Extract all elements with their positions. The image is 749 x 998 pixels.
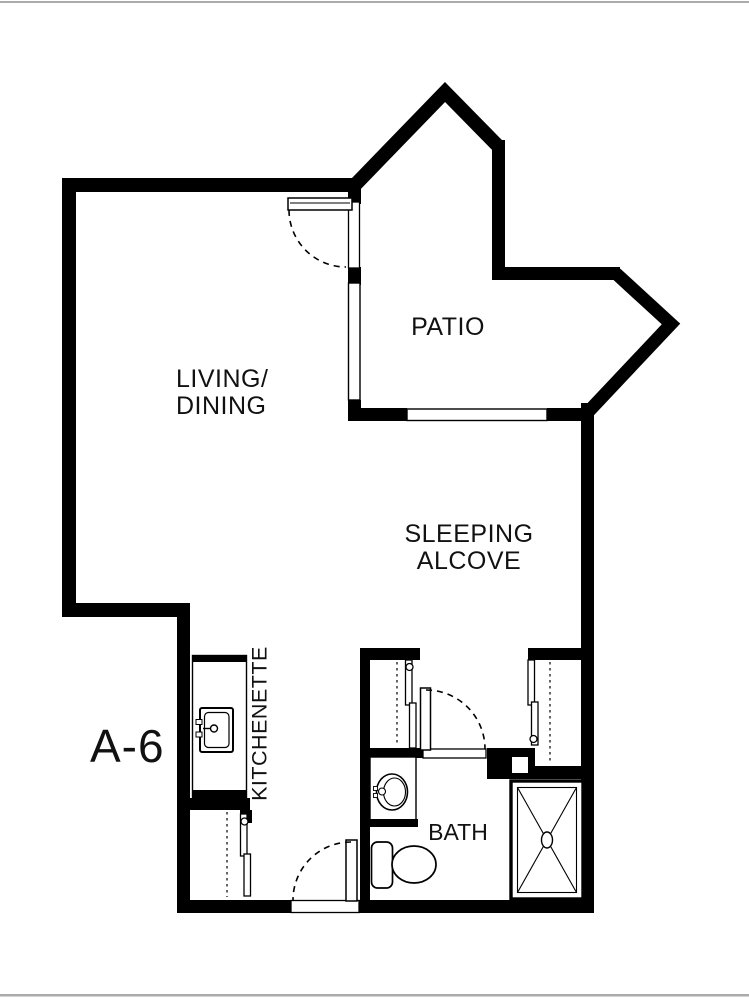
sleeping-alcove-label: SLEEPINGALCOVE [399,521,539,574]
patio-label: PATIO [398,314,498,341]
unit-number-label: A-6 [90,719,165,773]
sleeping-label-line2: ALCOVE [399,548,539,575]
bath-label: BATH [424,819,492,846]
patio-door [288,198,360,268]
kitchenette-label: KITCHENETTE [248,644,273,804]
closet-door-knob [530,736,537,743]
living-label-line2: DINING [176,393,268,420]
shower [511,781,583,899]
living-patio-window [349,283,361,400]
toilet [372,842,437,888]
patio-door-swing-arc [289,210,346,267]
faucet [379,788,386,795]
bathroom-sink [370,757,418,827]
unit-entry-door [291,840,359,913]
entry-door-threshold [291,901,359,913]
living-dining-label: LIVING/DINING [176,366,268,420]
bath-door-swing-arc [426,690,485,749]
bath-door-threshold [423,749,486,758]
entry-door-swing-arc [293,842,351,900]
bath-door-leaf [421,688,431,750]
wall-notch [512,757,528,773]
closet-door-knob [406,664,413,671]
faucet-knob [211,725,218,732]
toilet-tank [372,842,393,888]
toilet-bowl [392,846,436,883]
entry-closet [227,812,251,897]
bath-right-closet [528,660,550,762]
living-label-line1: LIVING/ [176,366,268,393]
closet-door-knob [241,818,248,825]
kitchenette-sink [196,708,233,752]
shower-drain [542,832,553,848]
floor-plan-page: LIVING/DINING PATIO SLEEPINGALCOVE BATH … [0,0,749,998]
bath-left-closet [397,660,416,748]
sleeping-label-line1: SLEEPING [399,521,539,548]
entry-door-leaf [346,840,357,901]
patio-bottom-window [407,409,547,421]
bath-door [421,688,487,758]
patio-diagonal-walls [354,92,671,411]
patio-door-opening [349,202,360,268]
patio-door-leaf [288,198,352,210]
floor-plan-drawing [0,0,749,998]
